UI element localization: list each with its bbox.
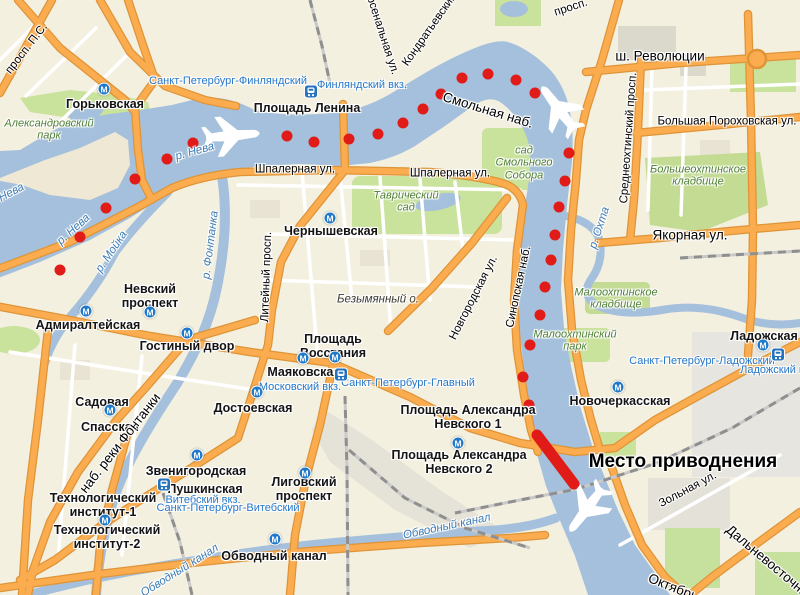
metro-station-icon[interactable]: М: [191, 449, 204, 462]
park-label: сад Смольного Собора: [496, 145, 553, 182]
island-label: Безымянный о.: [337, 294, 419, 307]
metro-station-icon[interactable]: М: [612, 381, 625, 394]
water-label: р. Фонтанка: [200, 210, 221, 280]
water-label: Обводный канал: [402, 511, 492, 542]
park-label: Таврический сад: [373, 190, 438, 215]
metro-station-icon[interactable]: М: [98, 83, 111, 96]
water-label: р. Нева: [55, 212, 93, 248]
train-station-icon[interactable]: [771, 348, 785, 367]
street-lg-label: Якорная ул.: [653, 227, 728, 242]
metro-station-icon[interactable]: М: [299, 467, 312, 480]
train-station-icon[interactable]: [157, 478, 171, 497]
station-label: Маяковская: [267, 365, 340, 379]
street-label: Зольная ул.: [657, 469, 719, 510]
station-label: Адмиралтейская: [36, 318, 141, 332]
station-label: Горьковская: [66, 97, 144, 111]
street-label: Новгородская ул.: [447, 254, 501, 342]
rail-label: Санкт-Петербург-Главный: [341, 377, 475, 389]
street-label: Шпалерная ул.: [410, 168, 490, 181]
street-label: Среднеохтинский просп.: [618, 72, 640, 204]
street-lg-label: Дальневосточный просп.: [723, 522, 800, 595]
water-label: р. Нева: [0, 181, 27, 211]
street-lg-label: наб. реки Фонтанки: [76, 390, 163, 496]
station-label: Чернышевская: [284, 224, 378, 238]
metro-station-icon[interactable]: М: [269, 533, 282, 546]
metro-station-icon[interactable]: М: [104, 404, 117, 417]
station-label: Площадь Александра Невского 2: [391, 448, 526, 476]
rail-label: Санкт-Петербург-Витебский: [156, 502, 299, 514]
street-lg-label: ш. Революции: [615, 48, 704, 63]
station-label: Площадь Александра Невского 1: [400, 403, 535, 431]
park-label: Большеохтинское кладбище: [650, 164, 746, 189]
metro-station-icon[interactable]: М: [144, 306, 157, 319]
water-label: р. Мойка: [94, 229, 131, 275]
street-label: Синопская наб.: [504, 245, 534, 329]
street-label: Кондратьевский: [400, 0, 460, 69]
map-viewport[interactable]: просп. П.С.ГорьковскаяАлександровский па…: [0, 0, 800, 595]
rail-label: Витебский вкз.: [165, 494, 240, 506]
label-overlay: просп. П.С.ГорьковскаяАлександровский па…: [0, 0, 800, 595]
park-label: Малоохтинский парк: [533, 329, 616, 354]
street-lg-label: Октябрьская наб.: [646, 570, 754, 595]
metro-station-icon[interactable]: М: [452, 437, 465, 450]
station-label: Гостиный двор: [140, 339, 235, 353]
station-label: Пушкинская: [167, 482, 242, 496]
street-label: Литейный просп.: [259, 232, 275, 323]
train-station-icon[interactable]: [304, 85, 318, 104]
street-lg-label: Смольная наб.: [441, 89, 535, 131]
train-station-icon[interactable]: [334, 368, 348, 387]
station-label: Технологический институт-2: [54, 523, 161, 551]
rail-label: Санкт-Петербург-Финляндский: [149, 75, 307, 87]
metro-station-icon[interactable]: М: [181, 327, 194, 340]
water-label: р. Нева: [174, 140, 216, 163]
street-label: Большая Пороховская ул.: [657, 116, 796, 129]
splashdown-callout-label: Место приводнения: [589, 451, 778, 473]
metro-station-icon[interactable]: М: [757, 339, 770, 352]
metro-station-icon[interactable]: М: [297, 352, 310, 365]
street-label: просп. П.С.: [3, 21, 50, 76]
station-label: Садовая: [75, 395, 128, 409]
station-label: Достоевская: [214, 401, 293, 415]
street-label: просп.: [553, 0, 590, 19]
rail-label: Санкт-Петербург-Ладожский: [629, 355, 775, 367]
metro-station-icon[interactable]: М: [251, 386, 264, 399]
station-label: Спасская: [81, 420, 139, 434]
metro-station-icon[interactable]: М: [99, 514, 112, 527]
station-label: Звенигородская: [146, 464, 247, 478]
rail-label: Финляндский вкз.: [317, 79, 407, 91]
metro-station-icon[interactable]: М: [324, 212, 337, 225]
station-label: Обводный канал: [221, 549, 326, 563]
metro-station-icon[interactable]: М: [80, 305, 93, 318]
rail-label: Московский вкз.: [259, 381, 341, 393]
water-label: р. Охта: [587, 206, 613, 251]
station-label: Новочеркасская: [570, 394, 671, 408]
park-label: Александровский парк: [4, 118, 93, 143]
park-label: Малоохтинское кладбище: [574, 287, 657, 312]
metro-station-icon[interactable]: М: [329, 351, 342, 364]
street-label: Шпалерная ул.: [255, 164, 335, 177]
water-label: Обводный канал: [139, 542, 221, 595]
street-label: Арсенальная ул.: [361, 0, 401, 76]
